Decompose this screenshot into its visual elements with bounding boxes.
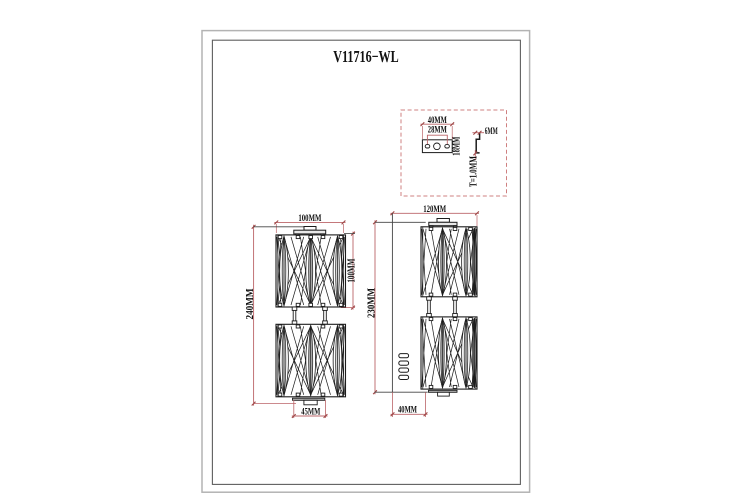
svg-text:230MM: 230MM [367,288,378,318]
svg-text:100MM: 100MM [298,214,321,224]
svg-text:100MM: 100MM [347,259,358,283]
svg-text:T=1.0MM: T=1.0MM [468,156,479,187]
svg-text:240MM: 240MM [245,288,256,319]
svg-text:120MM: 120MM [423,205,446,215]
svg-text:V11716−WL: V11716−WL [333,47,399,66]
svg-text:40MM: 40MM [398,406,417,416]
svg-text:45MM: 45MM [301,407,320,417]
svg-text:28MM: 28MM [428,126,447,136]
svg-text:6MM: 6MM [485,127,498,137]
svg-text:18MM: 18MM [452,136,463,155]
svg-text:40MM: 40MM [428,116,447,126]
